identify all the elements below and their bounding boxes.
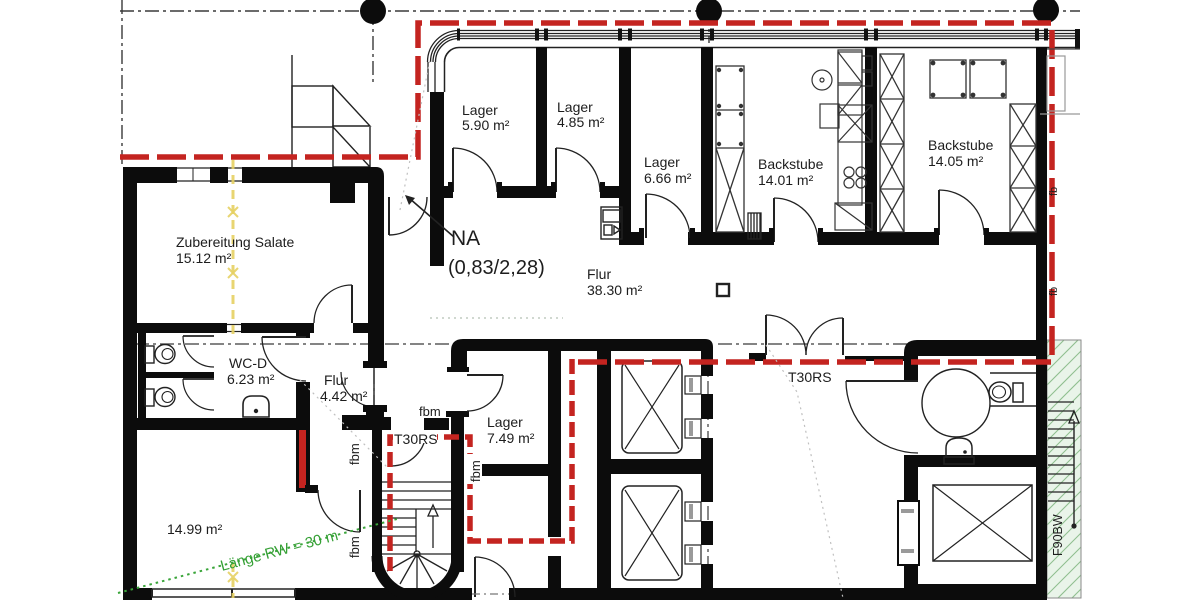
svg-text:fbm: fbm — [347, 443, 362, 465]
svg-text:5.90 m²: 5.90 m² — [462, 117, 510, 133]
svg-text:Lager: Lager — [557, 99, 593, 115]
svg-text:fbm: fbm — [468, 460, 483, 482]
svg-text:fb: fb — [1048, 187, 1060, 196]
svg-text:Backstube: Backstube — [758, 156, 824, 172]
svg-text:4.85 m²: 4.85 m² — [557, 114, 605, 130]
svg-text:fb: fb — [1048, 287, 1060, 296]
svg-text:6.66 m²: 6.66 m² — [644, 170, 692, 186]
svg-text:38.30 m²: 38.30 m² — [587, 282, 643, 298]
svg-text:Flur: Flur — [587, 266, 611, 282]
svg-text:14.99 m²: 14.99 m² — [167, 521, 223, 537]
svg-text:F90BW: F90BW — [1051, 514, 1065, 556]
svg-text:Lager: Lager — [644, 154, 680, 170]
svg-text:4.42 m²: 4.42 m² — [320, 388, 368, 404]
svg-text:Backstube: Backstube — [928, 137, 994, 153]
svg-text:14.05 m²: 14.05 m² — [928, 153, 984, 169]
svg-text:14.01 m²: 14.01 m² — [758, 172, 814, 188]
svg-text:WC-D: WC-D — [229, 355, 267, 371]
svg-text:fbm: fbm — [347, 536, 362, 558]
svg-text:T30RS: T30RS — [394, 431, 438, 447]
svg-text:fbm: fbm — [419, 404, 441, 419]
svg-text:6.23 m²: 6.23 m² — [227, 371, 275, 387]
svg-text:(0,83/2,28): (0,83/2,28) — [448, 257, 545, 279]
svg-text:Lager: Lager — [487, 414, 523, 430]
svg-text:7.49 m²: 7.49 m² — [487, 430, 535, 446]
svg-text:Flur: Flur — [324, 372, 348, 388]
svg-text:T30RS: T30RS — [788, 369, 832, 385]
svg-text:NA: NA — [451, 227, 480, 250]
svg-text:15.12 m²: 15.12 m² — [176, 250, 232, 266]
svg-text:Zubereitung Salate: Zubereitung Salate — [176, 234, 295, 250]
svg-text:Lager: Lager — [462, 102, 498, 118]
